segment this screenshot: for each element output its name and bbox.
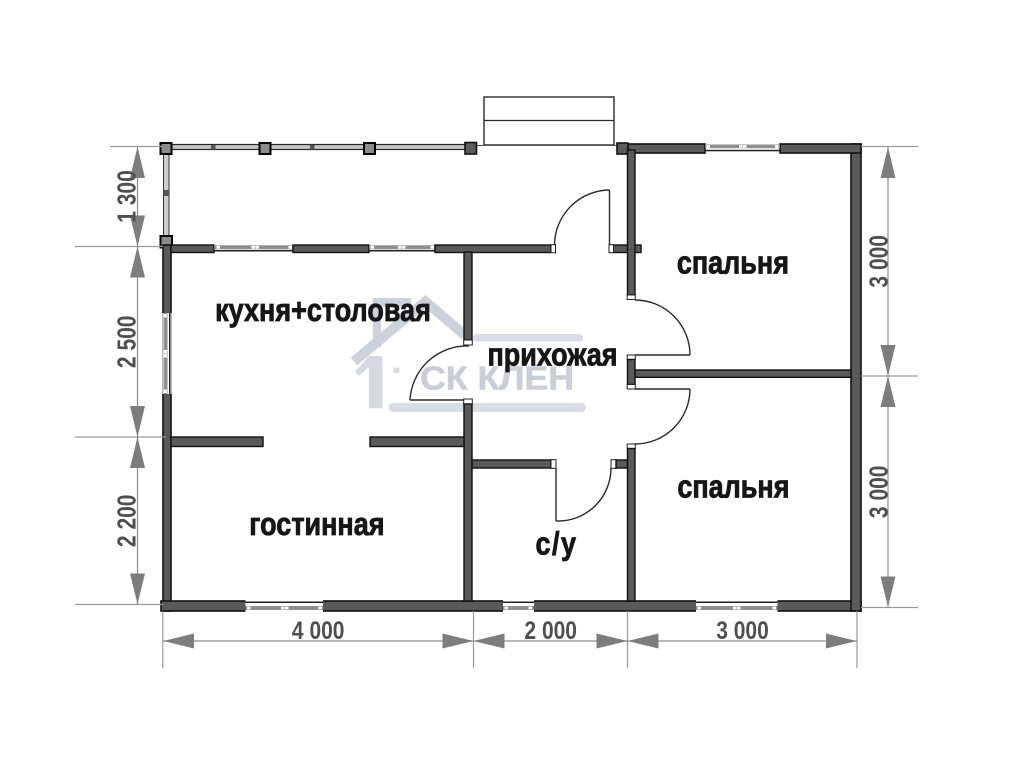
- svg-text:2 000: 2 000: [524, 616, 577, 644]
- svg-text:3 000: 3 000: [864, 235, 894, 288]
- svg-text:1 300: 1 300: [112, 170, 142, 223]
- svg-text:3 000: 3 000: [864, 466, 894, 519]
- svg-text:с/у: с/у: [535, 526, 577, 562]
- svg-text:прихожая: прихожая: [487, 337, 617, 373]
- svg-text:3 000: 3 000: [716, 616, 769, 644]
- svg-text:2 500: 2 500: [112, 316, 142, 369]
- svg-text:гостинная: гостинная: [249, 507, 384, 543]
- svg-text:2 200: 2 200: [112, 495, 142, 548]
- svg-text:кухня+столовая: кухня+столовая: [215, 293, 431, 329]
- svg-text:спальня: спальня: [677, 469, 789, 505]
- svg-text:спальня: спальня: [677, 245, 789, 281]
- svg-text:4 000: 4 000: [292, 616, 345, 644]
